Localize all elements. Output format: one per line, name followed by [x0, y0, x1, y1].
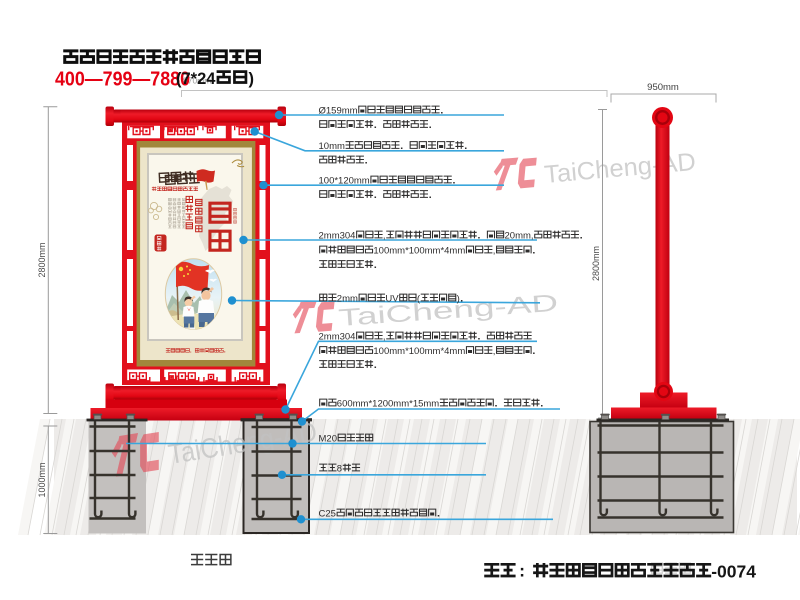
- svg-text:600mm*1200mm*15mm: 600mm*1200mm*15mm: [337, 399, 440, 410]
- svg-text:,: ,: [493, 346, 496, 357]
- svg-text:): ): [457, 294, 460, 305]
- svg-text:UV: UV: [385, 294, 399, 305]
- svg-text:): ): [248, 70, 254, 88]
- svg-text:100mm*100mm*4mm: 100mm*100mm*4mm: [373, 246, 465, 257]
- svg-text:10mm: 10mm: [319, 141, 345, 152]
- svg-text:2800mm: 2800mm: [37, 242, 47, 277]
- svg-text:1000mm: 1000mm: [37, 462, 47, 497]
- svg-text:2mm304: 2mm304: [319, 231, 356, 242]
- svg-text:20mm,: 20mm,: [505, 231, 534, 242]
- svg-text:(7*24: (7*24: [176, 70, 216, 88]
- svg-text:100mm*100mm*4mm: 100mm*100mm*4mm: [373, 346, 465, 357]
- svg-text:Ø159mm: Ø159mm: [319, 106, 358, 117]
- svg-text:8: 8: [337, 464, 342, 475]
- svg-text:-0074: -0074: [711, 562, 756, 582]
- svg-text:C25: C25: [319, 509, 336, 520]
- svg-text:950mm: 950mm: [647, 82, 679, 93]
- svg-text:400—799—7880: 400—799—7880: [55, 69, 190, 91]
- svg-text:2800mm: 2800mm: [591, 246, 601, 281]
- svg-text:,: ,: [383, 231, 386, 242]
- svg-text:M20: M20: [319, 434, 337, 445]
- svg-text:2mm304: 2mm304: [319, 332, 356, 343]
- svg-text:100*120mm: 100*120mm: [319, 176, 370, 187]
- svg-text:2mm: 2mm: [337, 294, 358, 305]
- svg-text:,: ,: [383, 332, 386, 343]
- svg-text:,: ,: [493, 246, 496, 257]
